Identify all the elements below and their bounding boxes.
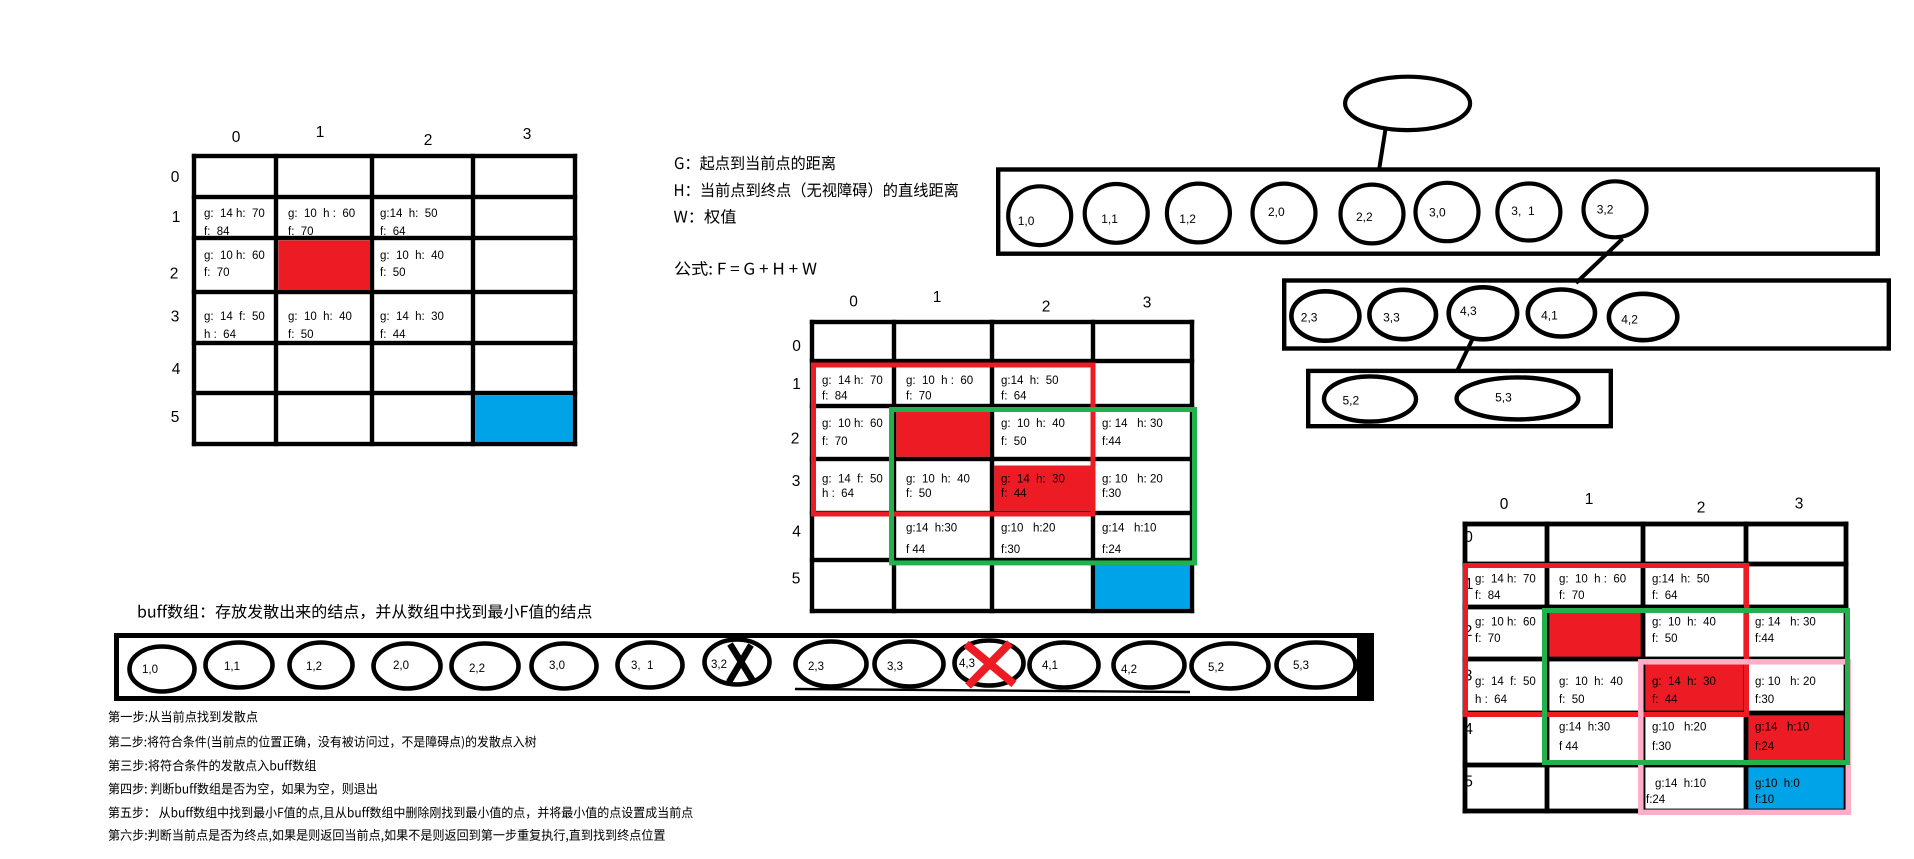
svg-text:3: 3 <box>171 309 180 326</box>
svg-text:2,2: 2,2 <box>1356 210 1373 224</box>
svg-text:2,3: 2,3 <box>1301 311 1318 325</box>
svg-text:h : 64: h : 64 <box>1475 694 1508 706</box>
svg-text:0: 0 <box>1464 529 1473 546</box>
svg-text:f: 70: f: 70 <box>906 391 932 403</box>
svg-text:g:14 h: 50: g:14 h: 50 <box>1001 375 1059 387</box>
svg-text:0: 0 <box>171 169 180 186</box>
svg-text:5,2: 5,2 <box>1343 393 1360 407</box>
svg-text:g:10 h:20: g:10 h:20 <box>1001 523 1055 535</box>
svg-text:g:14 h:10: g:14 h:10 <box>1755 722 1809 734</box>
svg-text:f: 84: f: 84 <box>1475 590 1501 602</box>
svg-text:2,0: 2,0 <box>393 660 409 672</box>
svg-text:f: 64: f: 64 <box>380 226 406 238</box>
svg-text:5: 5 <box>171 409 180 426</box>
svg-text:f:44: f:44 <box>1755 633 1775 645</box>
svg-text:5: 5 <box>1464 774 1473 791</box>
svg-text:4: 4 <box>172 361 181 378</box>
svg-text:f: 50: f: 50 <box>1652 633 1678 645</box>
svg-text:f:24: f:24 <box>1755 741 1775 753</box>
svg-text:1,0: 1,0 <box>1018 214 1035 228</box>
svg-text:g:14 h:10: g:14 h:10 <box>1655 778 1706 790</box>
svg-text:2: 2 <box>1042 298 1051 315</box>
svg-text:g:14 h:30: g:14 h:30 <box>906 523 957 535</box>
svg-text:1: 1 <box>933 289 942 306</box>
svg-text:3,2: 3,2 <box>711 659 727 671</box>
svg-text:3: 3 <box>523 126 532 143</box>
svg-text:g: 14 f: 50: g: 14 f: 50 <box>204 311 265 323</box>
svg-text:1: 1 <box>792 376 801 393</box>
svg-text:f:24: f:24 <box>1102 544 1122 556</box>
svg-text:g: 10 h : 60: g: 10 h : 60 <box>906 375 973 387</box>
svg-text:0: 0 <box>792 338 801 355</box>
svg-text:f: 44: f: 44 <box>1001 488 1027 500</box>
svg-text:g: 10 h: 40: g: 10 h: 40 <box>1652 617 1716 629</box>
svg-text:1,2: 1,2 <box>1179 212 1196 226</box>
svg-text:2: 2 <box>424 132 433 149</box>
svg-text:4,2: 4,2 <box>1121 664 1137 676</box>
svg-text:g: 10 h: 60: g: 10 h: 60 <box>822 418 883 430</box>
svg-text:g:14 h:30: g:14 h:30 <box>1559 722 1610 734</box>
svg-text:f:30: f:30 <box>1001 544 1020 556</box>
svg-text:1,1: 1,1 <box>1101 212 1118 226</box>
svg-text:f: 50: f: 50 <box>1001 436 1027 448</box>
svg-text:g: 10 h: 60: g: 10 h: 60 <box>1475 617 1536 629</box>
svg-text:f: 50: f: 50 <box>906 488 932 500</box>
svg-text:1: 1 <box>172 209 181 226</box>
svg-text:f:30: f:30 <box>1652 741 1671 753</box>
svg-text:0: 0 <box>232 129 241 146</box>
svg-text:g: 14 f: 50: g: 14 f: 50 <box>1475 676 1536 688</box>
svg-text:2,3: 2,3 <box>808 661 824 673</box>
svg-text:3, 1: 3, 1 <box>1511 204 1535 218</box>
svg-text:1: 1 <box>316 124 325 141</box>
svg-text:f: 50: f: 50 <box>288 329 314 341</box>
svg-text:g: 14 h: 30: g: 14 h: 30 <box>1755 617 1816 629</box>
svg-text:g:10 h:20: g:10 h:20 <box>1652 722 1706 734</box>
svg-text:h : 64: h : 64 <box>204 329 237 341</box>
svg-text:f: 84: f: 84 <box>204 226 230 238</box>
svg-text:4,3: 4,3 <box>959 658 975 670</box>
svg-text:f:24: f:24 <box>1646 794 1666 806</box>
svg-text:h : 64: h : 64 <box>822 488 855 500</box>
svg-text:3: 3 <box>792 473 801 490</box>
svg-text:3: 3 <box>1795 496 1804 513</box>
svg-text:g: 10 h : 60: g: 10 h : 60 <box>1559 574 1626 586</box>
svg-text:4,2: 4,2 <box>1621 313 1638 327</box>
svg-text:g: 10 h : 60: g: 10 h : 60 <box>288 208 355 220</box>
svg-text:0: 0 <box>849 294 858 311</box>
svg-text:5,3: 5,3 <box>1495 391 1512 405</box>
svg-text:g: 14 h: 30: g: 14 h: 30 <box>1102 418 1163 430</box>
svg-text:g: 14 h: 70: g: 14 h: 70 <box>204 208 265 220</box>
svg-text:4: 4 <box>1464 721 1473 738</box>
svg-text:g: 10 h: 40: g: 10 h: 40 <box>380 250 444 262</box>
svg-text:f:30: f:30 <box>1755 694 1774 706</box>
svg-text:g: 14 h: 70: g: 14 h: 70 <box>822 375 883 387</box>
svg-text:f: 70: f: 70 <box>204 267 230 279</box>
svg-text:2: 2 <box>1697 500 1706 517</box>
svg-text:g: 10 h: 40: g: 10 h: 40 <box>1001 418 1065 430</box>
svg-text:0: 0 <box>1500 496 1509 513</box>
svg-text:3,0: 3,0 <box>1429 206 1446 220</box>
svg-text:f: 50: f: 50 <box>380 267 406 279</box>
svg-text:3,0: 3,0 <box>549 660 565 672</box>
svg-text:g:14 h: 50: g:14 h: 50 <box>1652 574 1710 586</box>
svg-text:f:30: f:30 <box>1102 488 1121 500</box>
svg-text:3,2: 3,2 <box>1597 203 1614 217</box>
svg-text:4,3: 4,3 <box>1460 304 1477 318</box>
svg-text:2: 2 <box>791 431 800 448</box>
svg-text:g:14 h:10: g:14 h:10 <box>1102 523 1156 535</box>
svg-text:g: 10 h: 40: g: 10 h: 40 <box>906 474 970 486</box>
svg-text:f: 50: f: 50 <box>1559 694 1585 706</box>
svg-text:1,1: 1,1 <box>224 661 240 673</box>
svg-text:3,3: 3,3 <box>1383 311 1400 325</box>
svg-text:f 44: f 44 <box>1559 741 1579 753</box>
svg-text:f 44: f 44 <box>906 544 926 556</box>
svg-text:2,0: 2,0 <box>1268 205 1285 219</box>
svg-text:f: 64: f: 64 <box>1001 391 1027 403</box>
svg-text:3, 1: 3, 1 <box>631 660 653 672</box>
svg-text:f: 70: f: 70 <box>822 436 848 448</box>
svg-text:f: 84: f: 84 <box>822 391 848 403</box>
svg-text:g: 10 h: 20: g: 10 h: 20 <box>1755 676 1816 688</box>
svg-text:f: 64: f: 64 <box>1652 590 1678 602</box>
svg-text:g: 14 h: 30: g: 14 h: 30 <box>1652 676 1716 688</box>
svg-text:1,0: 1,0 <box>142 664 158 676</box>
svg-text:f:44: f:44 <box>1102 436 1122 448</box>
svg-text:2,2: 2,2 <box>469 663 485 675</box>
svg-text:g: 10 h: 20: g: 10 h: 20 <box>1102 474 1163 486</box>
svg-text:f: 44: f: 44 <box>380 329 406 341</box>
svg-text:5,3: 5,3 <box>1293 660 1309 672</box>
svg-text:4,1: 4,1 <box>1541 308 1558 322</box>
svg-text:5: 5 <box>792 571 801 588</box>
svg-text:g:14 h: 50: g:14 h: 50 <box>380 208 438 220</box>
svg-text:f: 70: f: 70 <box>1559 590 1585 602</box>
svg-text:3: 3 <box>1143 295 1152 312</box>
svg-text:4,1: 4,1 <box>1042 660 1058 672</box>
svg-text:f: 44: f: 44 <box>1652 694 1678 706</box>
svg-text:2: 2 <box>170 266 179 283</box>
svg-text:1: 1 <box>1585 491 1594 508</box>
svg-text:g: 10 h: 40: g: 10 h: 40 <box>288 311 352 323</box>
svg-text:g: 10 h: 60: g: 10 h: 60 <box>204 250 265 262</box>
svg-text:g: 14 h: 70: g: 14 h: 70 <box>1475 574 1536 586</box>
svg-text:g: 10 h: 40: g: 10 h: 40 <box>1559 676 1623 688</box>
svg-text:5,2: 5,2 <box>1208 662 1224 674</box>
svg-text:g:10 h:0: g:10 h:0 <box>1755 778 1800 790</box>
svg-text:1,2: 1,2 <box>306 661 322 673</box>
svg-text:f: 70: f: 70 <box>1475 633 1501 645</box>
svg-text:g: 14 f: 50: g: 14 f: 50 <box>822 474 883 486</box>
svg-text:f: 70: f: 70 <box>288 226 314 238</box>
svg-text:f:10: f:10 <box>1755 794 1774 806</box>
svg-text:3,3: 3,3 <box>887 661 903 673</box>
svg-text:4: 4 <box>792 524 801 541</box>
svg-text:g: 14 h: 30: g: 14 h: 30 <box>380 311 444 323</box>
svg-text:g: 14 h: 30: g: 14 h: 30 <box>1001 474 1065 486</box>
